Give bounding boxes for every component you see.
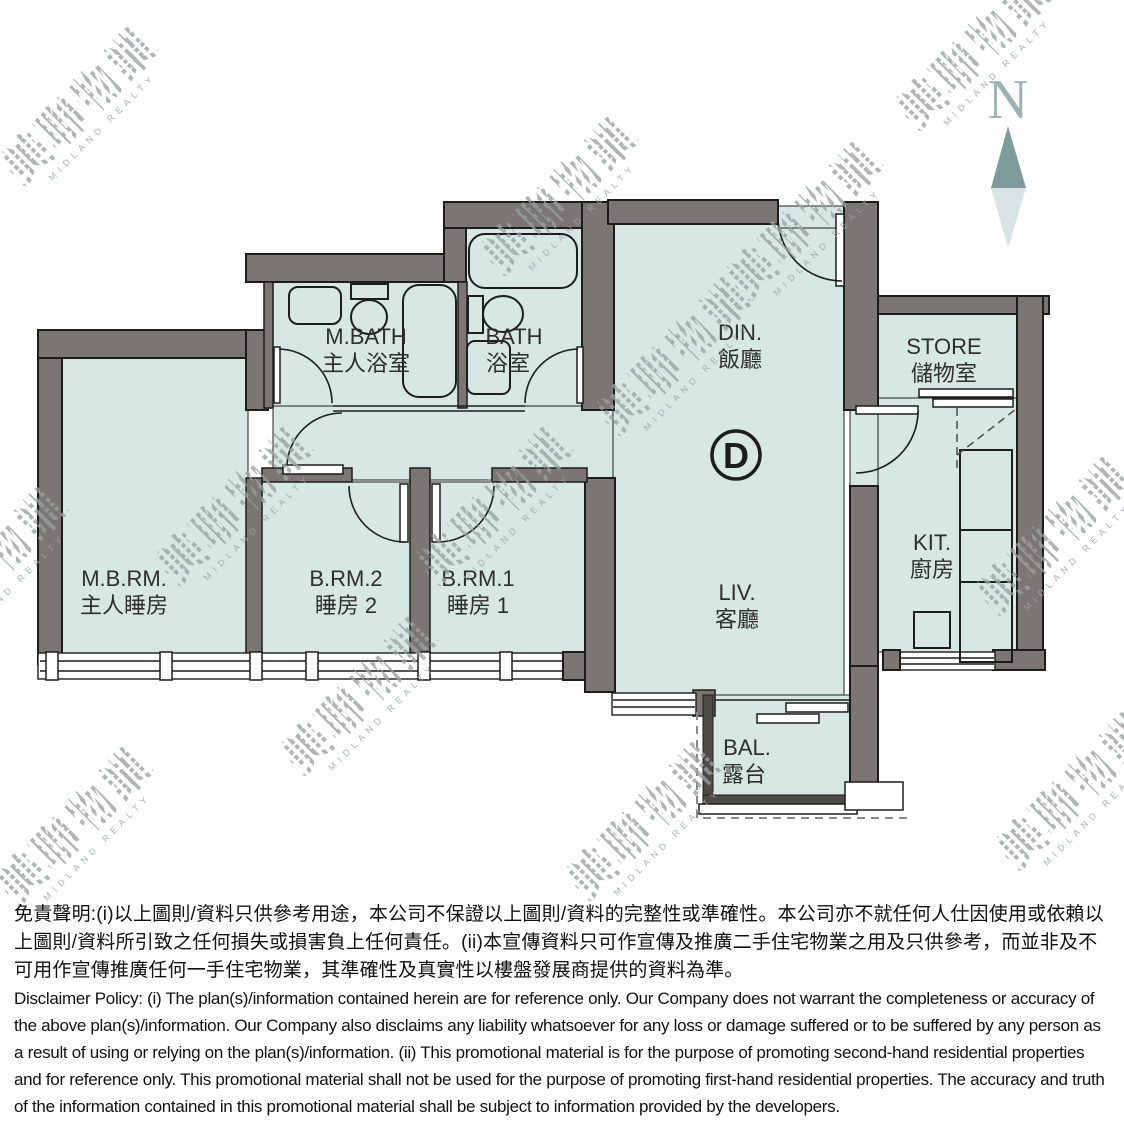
balcony-balustrade [699, 804, 857, 814]
disclaimer-block: 免責聲明:(i)以上圖則/資料只供參考用途，本公司不保證以上圖則/資料的完整性或… [14, 901, 1112, 1120]
wall-brm1-liv-div [585, 478, 615, 692]
wall-mbath-left [264, 282, 273, 408]
north-arrow: N [988, 69, 1028, 248]
floor-plan-page: M.BATH 主人浴室 BATH 浴室 DIN. 飯廳 STORE 儲物室 M.… [0, 0, 1124, 1127]
floor-entrance [778, 206, 844, 228]
label-liv-cn: 客廳 [715, 607, 759, 632]
wall-mbrm-top [38, 330, 252, 358]
store-shelf [919, 389, 1013, 397]
wall-right-outer [1017, 296, 1043, 664]
label-kit-cn: 廚房 [910, 557, 954, 582]
window-band-living [612, 693, 696, 715]
sliding-door-panel [786, 703, 848, 712]
floor-kitchen-door [850, 410, 878, 486]
label-brm1-cn: 睡房 1 [447, 593, 509, 618]
north-arrow-dark [991, 126, 1026, 188]
wall-balcony-right [850, 666, 878, 784]
label-liv: LIV. [718, 580, 755, 605]
window-mullion [250, 652, 262, 680]
balcony-wall-bottom [703, 795, 852, 804]
mbrm-door-leaf [283, 465, 343, 474]
wall-brm1-top [492, 468, 587, 482]
unit-letter: D [723, 435, 749, 476]
floor-kitchen [878, 398, 1017, 652]
label-mbath-cn: 主人浴室 [322, 351, 410, 376]
label-kit: KIT. [913, 530, 951, 555]
label-mbrm-cn: 主人睡房 [80, 593, 168, 618]
disclaimer-english: Disclaimer Policy: (i) The plan(s)/infor… [14, 985, 1112, 1120]
wall-bath-right-col [582, 202, 614, 410]
wall-mbath-bath-div [458, 282, 467, 408]
label-brm1: B.RM.1 [441, 566, 514, 591]
north-arrow-light [991, 188, 1026, 248]
label-store-cn: 儲物室 [911, 361, 977, 386]
label-bal: BAL. [723, 735, 771, 760]
label-din-cn: 飯廳 [718, 347, 762, 372]
window-end-block [563, 652, 585, 680]
window-mullion [46, 652, 58, 680]
label-bath: BATH [485, 324, 542, 349]
label-brm2-cn: 睡房 2 [315, 593, 377, 618]
entrance-door-leaf [836, 214, 844, 286]
wall-kit-liv-div [850, 486, 878, 666]
window-mullion [306, 652, 318, 680]
label-mbath: M.BATH [325, 324, 406, 349]
window-mullion [160, 652, 172, 680]
store-shelf [933, 399, 1013, 407]
balcony-wall-left [703, 695, 713, 803]
label-bal-cn: 露台 [722, 762, 766, 787]
window-end-block [883, 650, 900, 670]
wall-dining-top [608, 200, 778, 224]
bath-door-leaf [577, 347, 583, 403]
label-bath-cn: 浴室 [486, 351, 530, 376]
wall-mbath-top [246, 254, 464, 282]
wall-entrance-col [844, 202, 878, 410]
label-mbrm: M.B.RM. [81, 566, 167, 591]
disclaimer-chinese: 免責聲明:(i)以上圖則/資料只供參考用途，本公司不保證以上圖則/資料的完整性或… [14, 901, 1112, 985]
label-store: STORE [906, 334, 981, 359]
wall-brm-div [410, 468, 430, 662]
brm2-door-leaf [400, 484, 408, 542]
wall-mbrm-div [246, 478, 262, 662]
sliding-door-panel [757, 714, 819, 723]
label-brm2: B.RM.2 [309, 566, 382, 591]
exterior-step [845, 782, 903, 810]
north-letter: N [988, 69, 1028, 131]
label-din: DIN. [718, 320, 762, 345]
mbath-door-leaf [274, 347, 280, 403]
window-mullion [418, 652, 430, 680]
brm1-door-leaf [432, 484, 440, 542]
wall-left-outer [38, 330, 62, 664]
kitchen-door-leaf [856, 406, 918, 414]
floor-plan-drawing: M.BATH 主人浴室 BATH 浴室 DIN. 飯廳 STORE 儲物室 M.… [0, 0, 1124, 895]
wall-kit-bottom-corner [993, 650, 1045, 670]
window-mullion [500, 652, 512, 680]
